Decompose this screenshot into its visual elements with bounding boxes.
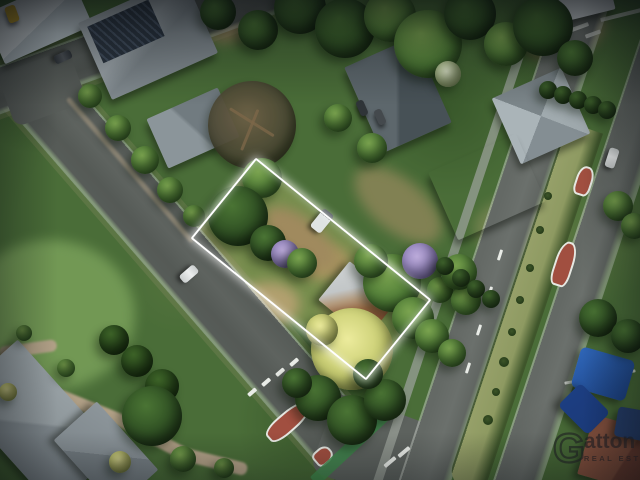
watermark-tagline: REAL ESTATE xyxy=(584,454,640,463)
tree xyxy=(157,177,183,203)
tree xyxy=(436,257,454,275)
watermark-brand-name: atton xyxy=(584,432,640,452)
median-shrub xyxy=(526,264,534,272)
median-shrub xyxy=(516,296,524,304)
median-shrub xyxy=(544,192,552,200)
watermark-logo-initial: G xyxy=(553,429,583,467)
tree xyxy=(238,10,278,50)
tree xyxy=(402,243,438,279)
tree xyxy=(16,325,32,341)
tree xyxy=(214,458,234,478)
tree xyxy=(57,359,75,377)
agency-watermark: G atton REAL ESTATE xyxy=(553,429,640,467)
aerial-photograph: G atton REAL ESTATE xyxy=(0,0,640,480)
median-shrub xyxy=(483,415,493,425)
tree xyxy=(324,104,352,132)
tree xyxy=(557,40,593,76)
median-shrub xyxy=(499,357,509,367)
median-shrub xyxy=(508,328,516,336)
tree xyxy=(78,84,102,108)
tree xyxy=(200,0,236,30)
tree xyxy=(122,386,182,446)
median-shrub xyxy=(492,388,500,396)
tree xyxy=(105,115,131,141)
tree xyxy=(0,383,17,401)
tree xyxy=(598,101,616,119)
tree xyxy=(611,319,640,353)
tree xyxy=(438,339,466,367)
tree xyxy=(357,133,387,163)
tree xyxy=(170,446,196,472)
tree xyxy=(621,213,640,239)
tree xyxy=(109,451,131,473)
tree xyxy=(482,290,500,308)
tree xyxy=(282,368,312,398)
tree xyxy=(435,61,461,87)
tree xyxy=(121,345,153,377)
median-shrub xyxy=(536,226,544,234)
tree xyxy=(131,146,159,174)
